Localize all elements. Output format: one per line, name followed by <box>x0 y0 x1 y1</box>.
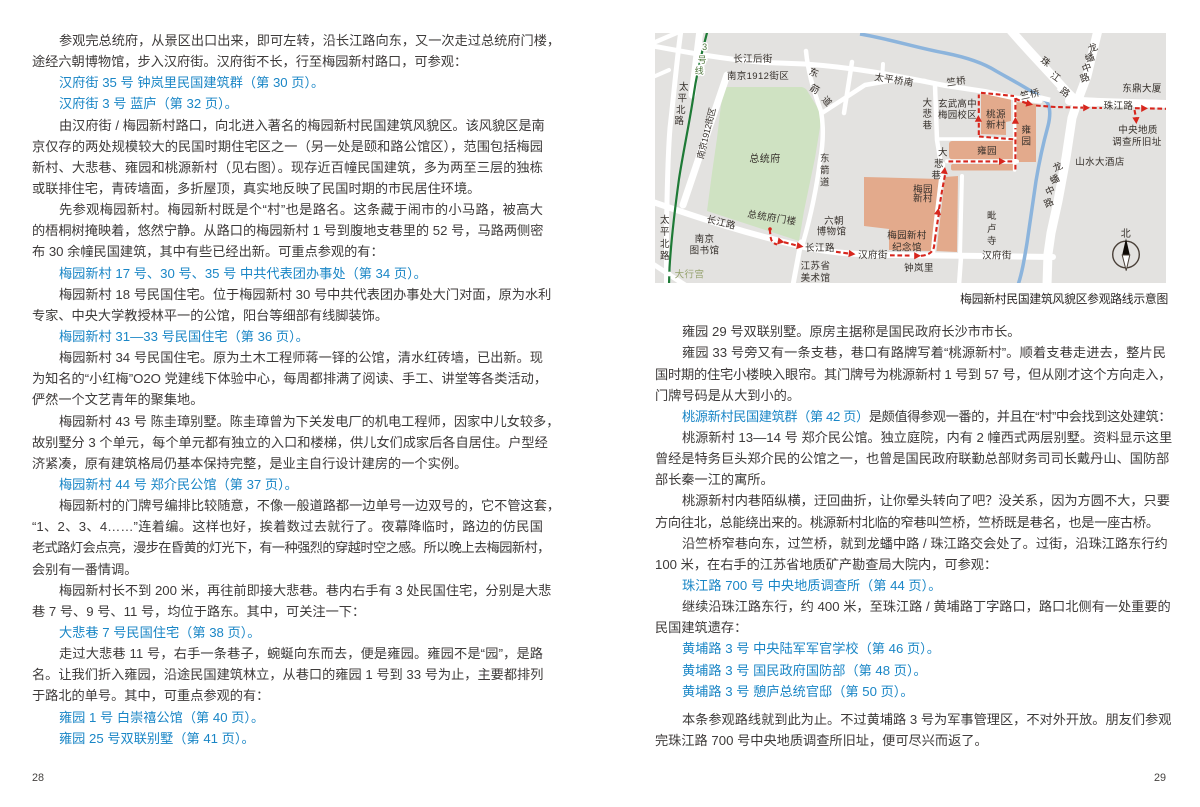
svg-text:图书馆: 图书馆 <box>690 245 720 257</box>
svg-text:山水大酒店: 山水大酒店 <box>1075 156 1125 168</box>
svg-text:3: 3 <box>702 42 707 52</box>
svg-text:梅园校区: 梅园校区 <box>938 109 977 121</box>
svg-text:号: 号 <box>698 55 707 65</box>
svg-text:大悲巷: 大悲巷 <box>923 97 933 131</box>
svg-text:博物馆: 博物馆 <box>817 226 847 238</box>
svg-text:线: 线 <box>695 65 704 76</box>
svg-text:北: 北 <box>1121 228 1131 240</box>
svg-text:汉府街: 汉府街 <box>858 249 888 261</box>
svg-text:六朝: 六朝 <box>824 215 844 227</box>
svg-text:雍园: 雍园 <box>977 145 997 157</box>
svg-text:新村: 新村 <box>986 119 1006 131</box>
svg-text:桃源: 桃源 <box>986 109 1006 121</box>
svg-text:珠江路: 珠江路 <box>1104 100 1134 112</box>
svg-text:新村: 新村 <box>913 193 933 205</box>
svg-text:汉府街: 汉府街 <box>982 250 1012 262</box>
svg-text:中央地质: 中央地质 <box>1118 124 1158 136</box>
svg-text:长江路: 长江路 <box>805 242 835 254</box>
svg-text:总统府: 总统府 <box>749 152 780 165</box>
svg-text:东箭道: 东箭道 <box>820 153 830 189</box>
svg-text:玄武高中: 玄武高中 <box>938 98 977 110</box>
svg-text:钟岚里: 钟岚里 <box>904 262 934 274</box>
svg-text:调查所旧址: 调查所旧址 <box>1112 136 1162 148</box>
svg-text:东鼎大厦: 东鼎大厦 <box>1122 82 1162 94</box>
svg-text:雍园: 雍园 <box>1022 124 1032 148</box>
svg-text:纪念馆: 纪念馆 <box>892 242 922 254</box>
svg-text:南京1912街区: 南京1912街区 <box>727 70 789 82</box>
svg-text:长江后街: 长江后街 <box>733 53 773 65</box>
svg-text:美术馆: 美术馆 <box>801 272 831 283</box>
svg-text:江苏省: 江苏省 <box>801 260 831 272</box>
svg-text:梅园新村: 梅园新村 <box>887 230 927 242</box>
svg-text:大行宫: 大行宫 <box>675 269 705 281</box>
svg-text:毗卢寺: 毗卢寺 <box>987 211 997 247</box>
svg-text:南京: 南京 <box>695 233 715 245</box>
